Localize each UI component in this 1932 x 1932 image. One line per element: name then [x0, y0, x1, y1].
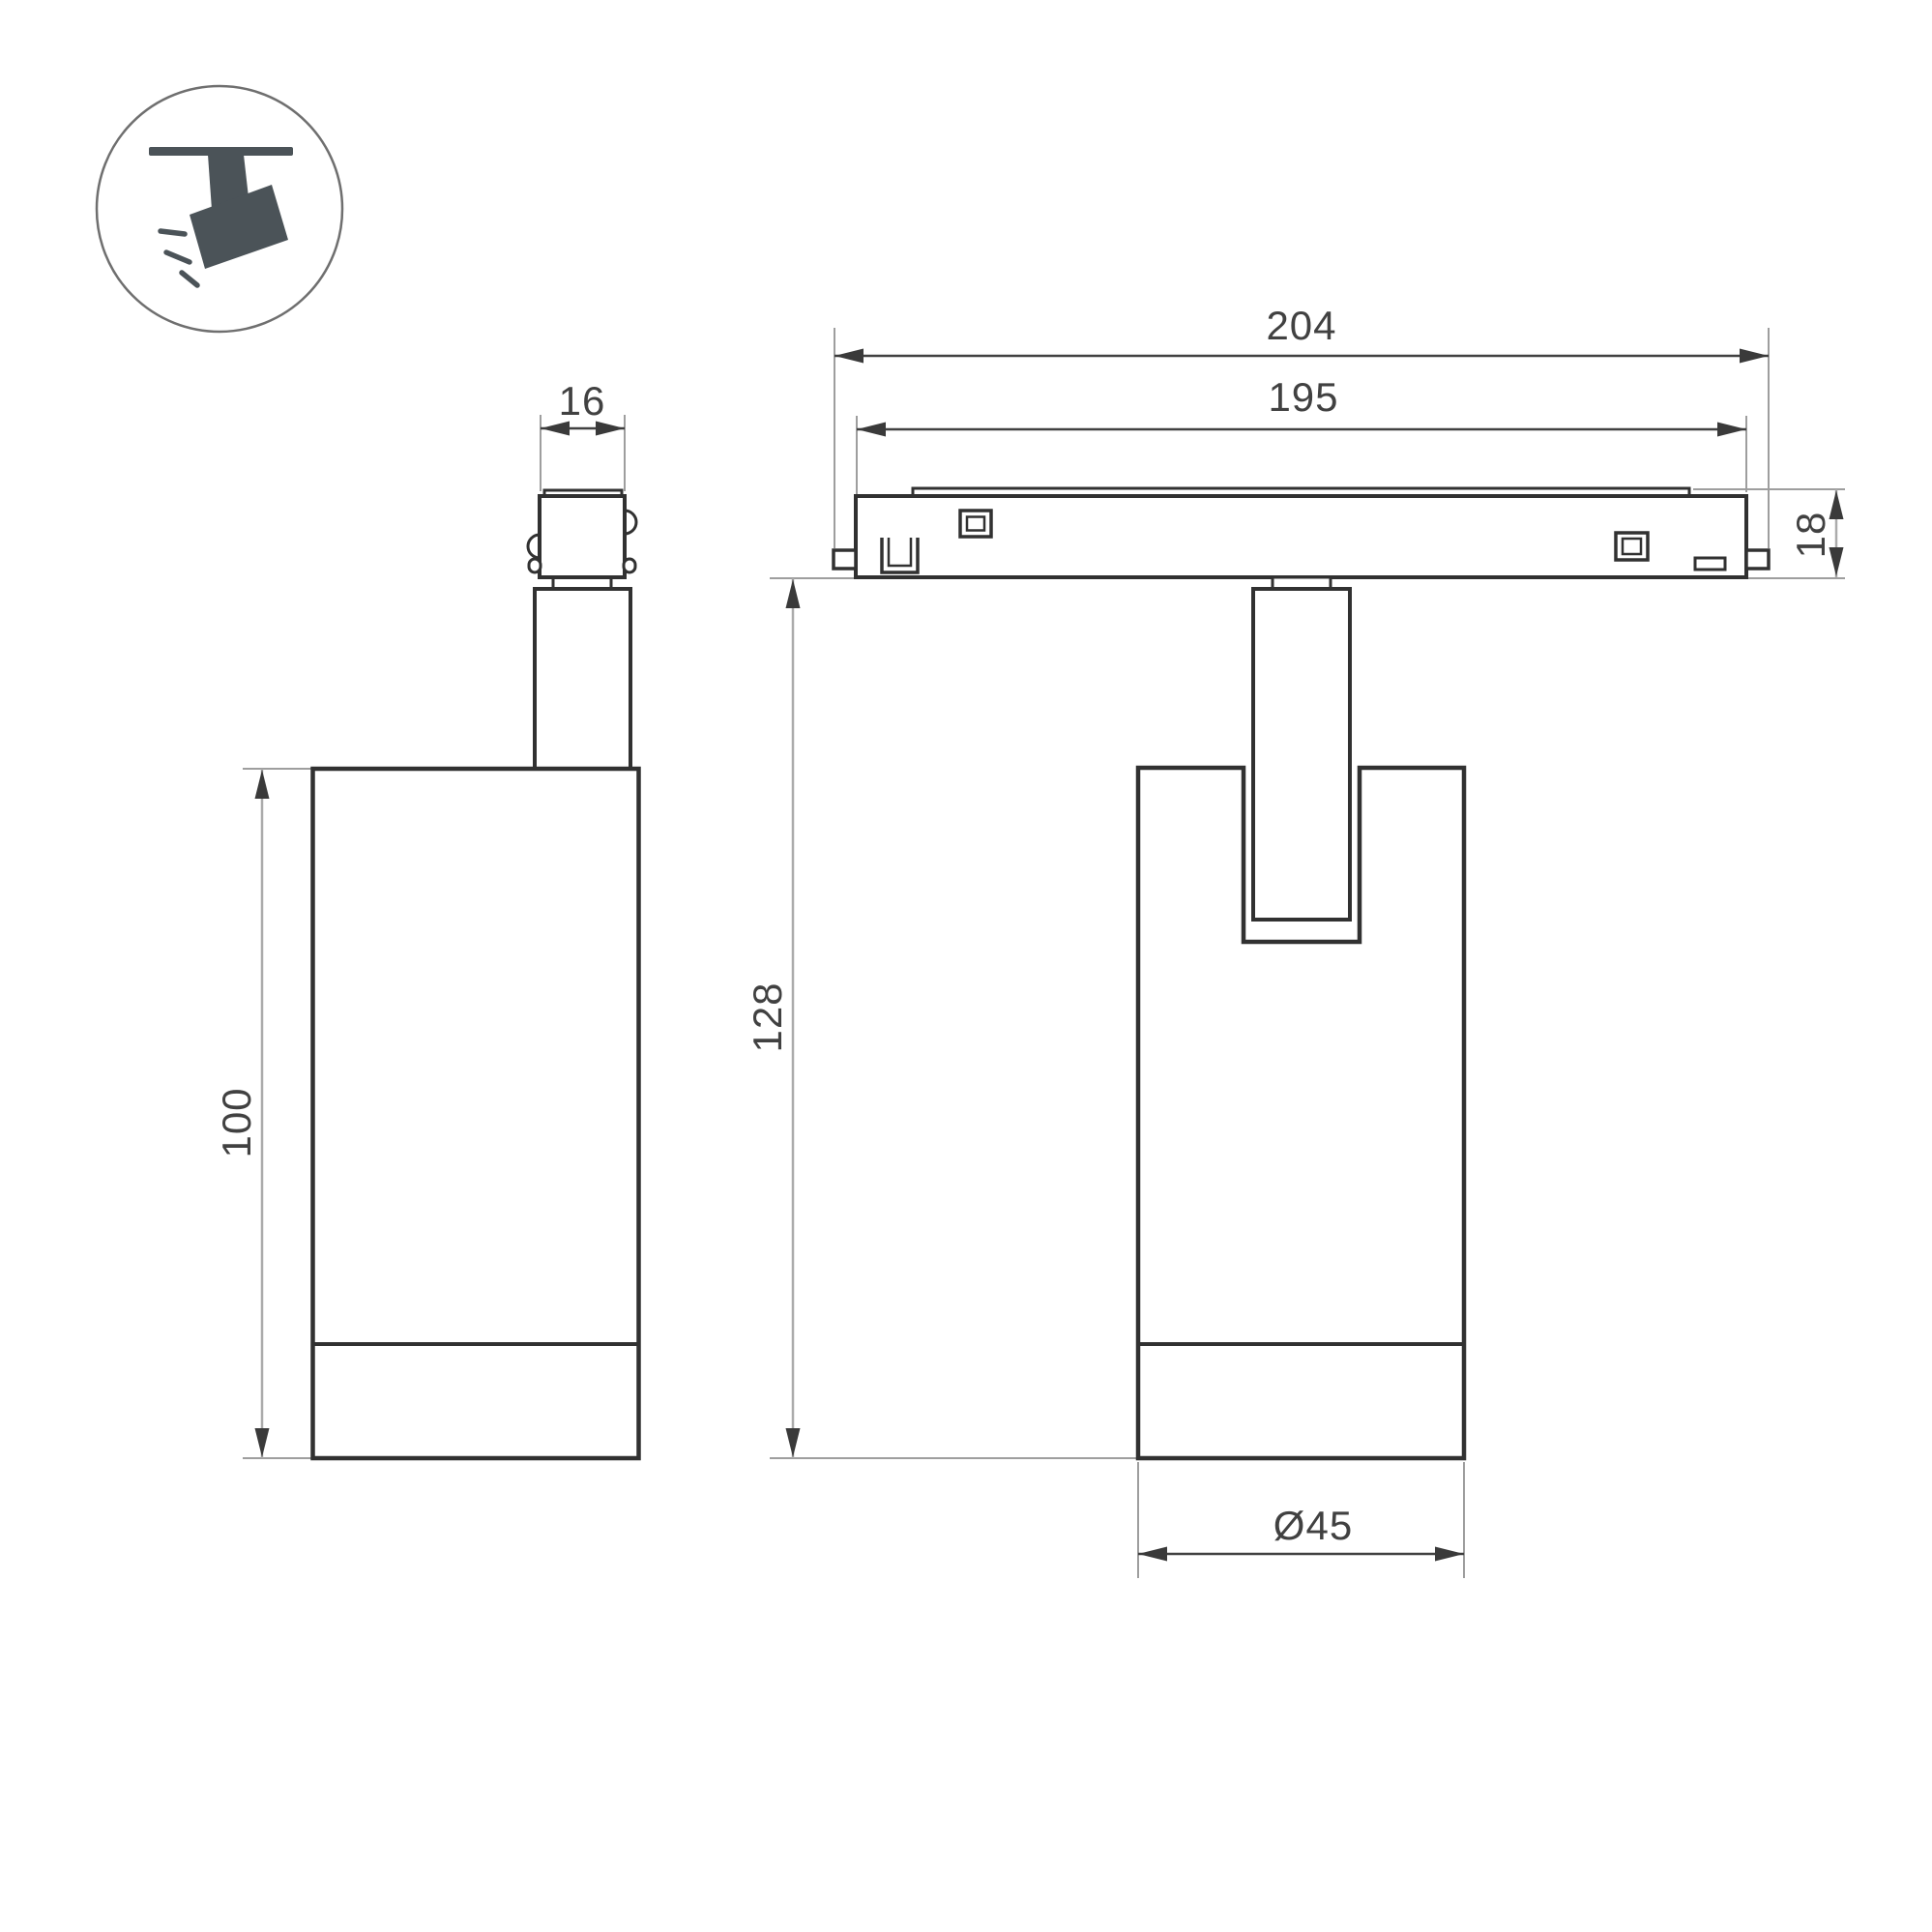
front-view — [834, 488, 1769, 1458]
arrow-195-left — [857, 423, 886, 437]
track-bar-icon — [149, 147, 293, 156]
arrow-204-left — [834, 349, 864, 364]
track-end-tab-left — [834, 550, 856, 569]
light-ray-1 — [161, 231, 185, 234]
side-stem — [535, 589, 630, 769]
arrow-128-bottom — [786, 1428, 801, 1457]
arrow-d45-right — [1435, 1547, 1464, 1562]
dim-204-label: 204 — [1266, 303, 1336, 348]
track-end-tab-right — [1746, 550, 1769, 569]
side-adapter-ear-left — [529, 559, 541, 572]
dim-16-label: 16 — [559, 378, 606, 424]
side-adapter-ear-right — [624, 559, 635, 572]
arrow-100-top — [255, 770, 270, 799]
track-contact-left-inner — [967, 517, 984, 531]
track-slot-right — [1695, 558, 1725, 570]
spotlight-pictogram — [97, 86, 342, 332]
dim-195-label: 195 — [1268, 374, 1338, 420]
arrow-195-right — [1717, 423, 1746, 437]
arrow-128-top — [786, 579, 801, 608]
side-track-adapter — [540, 496, 625, 577]
dim-18-label: 18 — [1788, 512, 1833, 559]
arrow-100-bottom — [255, 1428, 270, 1457]
side-view — [313, 490, 639, 1458]
front-stem — [1253, 589, 1350, 920]
side-body — [313, 769, 639, 1458]
track-contact-right-inner — [1623, 539, 1641, 554]
arrow-204-right — [1740, 349, 1769, 364]
dimension-drawing-page: 16 204 195 Ø45 100 128 18 — [0, 0, 1932, 1932]
dim-d45-label: Ø45 — [1273, 1503, 1353, 1548]
dim-100-label: 100 — [214, 1087, 259, 1157]
dim-128-label: 128 — [745, 981, 790, 1052]
drawing-svg: 16 204 195 Ø45 100 128 18 — [0, 0, 1932, 1932]
arrow-d45-left — [1138, 1547, 1167, 1562]
